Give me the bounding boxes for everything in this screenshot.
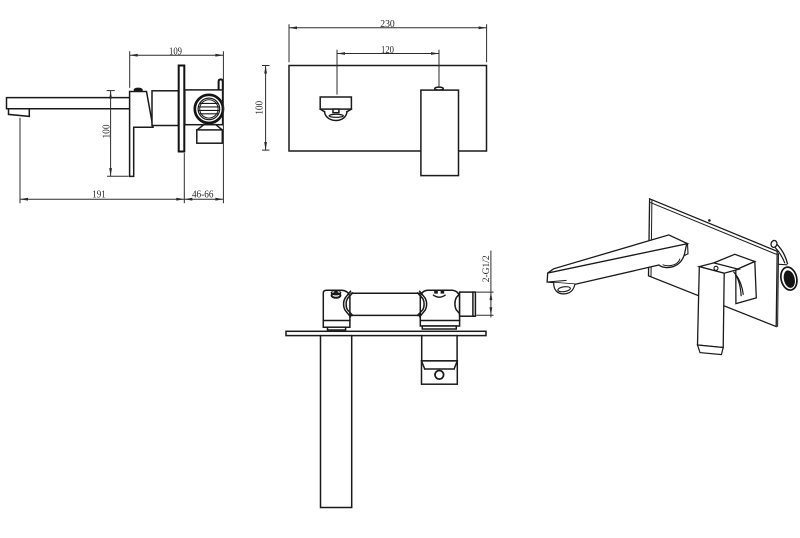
svg-text:109: 109 [169,46,182,57]
svg-text:120: 120 [381,45,394,56]
svg-text:191: 191 [92,190,106,201]
svg-text:230: 230 [380,19,395,30]
svg-text:100: 100 [101,125,112,139]
svg-text:2-G1/2: 2-G1/2 [482,255,492,282]
svg-text:100: 100 [254,101,265,115]
svg-text:46-66: 46-66 [192,190,214,201]
